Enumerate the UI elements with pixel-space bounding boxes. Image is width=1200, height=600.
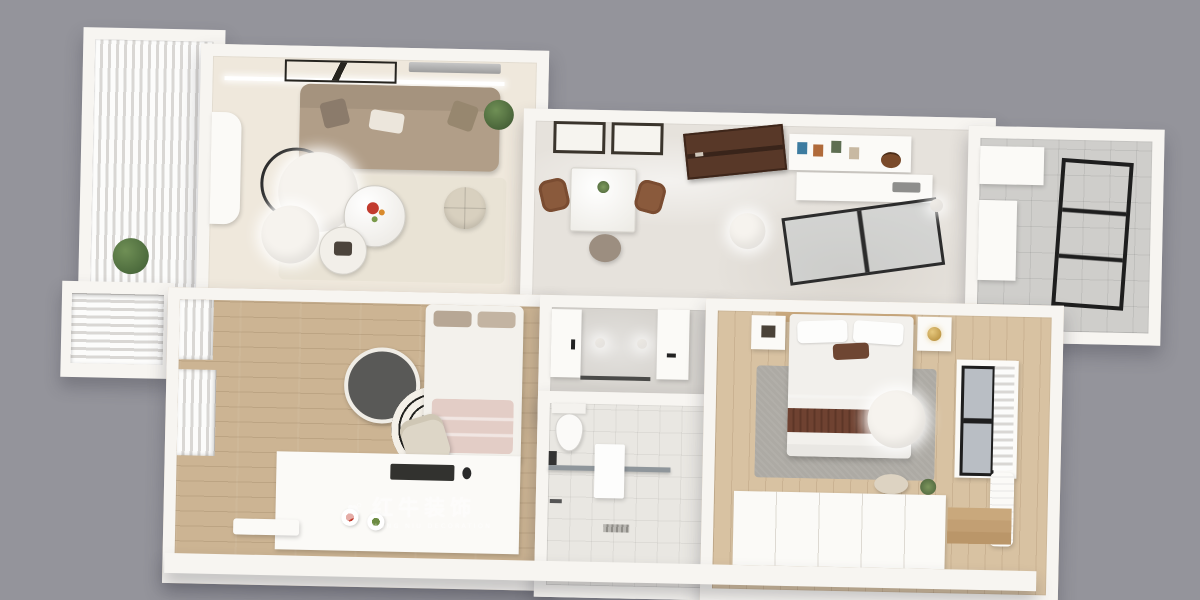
kitchen-glass-partition: [781, 197, 945, 286]
nightstand: [917, 317, 952, 352]
book-decor: [761, 325, 775, 337]
picture-frame: [553, 121, 606, 154]
flower-vase: [597, 181, 609, 193]
watermark-brand-en: HONG NIU DECORATION: [372, 522, 492, 530]
kitchen-pendant-light: [930, 199, 943, 212]
floorplan-render: 红牛装饰 HONG NIU DECORATION: [0, 0, 1200, 600]
wall-art: [285, 59, 397, 83]
plant-icon: [920, 479, 936, 495]
toilet-tank: [552, 403, 586, 414]
dining-table: [569, 167, 636, 232]
door-handle: [571, 339, 575, 349]
ac-vent: [409, 62, 501, 74]
window: [954, 359, 1018, 478]
window-shade: [179, 299, 214, 360]
bull-logo-icon: [338, 501, 364, 527]
floor-drain: [603, 524, 629, 533]
wardrobe: [732, 491, 946, 569]
pillow: [433, 311, 471, 328]
threshold: [580, 376, 650, 381]
dining-chair: [537, 176, 571, 213]
keyboard: [390, 464, 454, 481]
sofa-pillow: [368, 109, 405, 134]
toilet: [555, 413, 584, 452]
pillow: [797, 320, 848, 344]
picture-frame: [611, 122, 664, 155]
paper-holder: [549, 451, 557, 465]
downlight: [595, 338, 605, 348]
downlight: [637, 339, 647, 349]
entry-console-shelf: [789, 134, 912, 173]
pillow: [477, 311, 515, 328]
watermark: 红牛装饰 HONG NIU DECORATION: [338, 498, 492, 530]
console-decor: [797, 142, 807, 154]
bedroom-small: [162, 287, 560, 591]
stool: [874, 474, 908, 495]
plant-icon: [484, 100, 515, 131]
apartment-plan: [0, 0, 1200, 600]
hand-bag: [881, 152, 901, 168]
side-counter: [978, 200, 1018, 281]
fruit-bowl: [367, 202, 379, 214]
hall-ceiling-lamp: [729, 213, 766, 250]
faucet-icon: [667, 353, 676, 357]
master-bedroom: [700, 298, 1064, 600]
wood-steps: [947, 507, 1012, 544]
dark-glass-door: [1051, 158, 1134, 311]
dining-stool: [589, 234, 622, 263]
mouse: [462, 467, 471, 479]
window-shade: [177, 369, 217, 456]
tray: [334, 241, 352, 255]
bay-roller-shade: [71, 293, 164, 365]
accent-pillow: [833, 342, 870, 360]
dining-chair: [632, 178, 667, 216]
curtain: [993, 366, 1015, 470]
vanity: [656, 309, 689, 380]
gold-table-lamp: [927, 327, 941, 341]
entry-door: [683, 124, 787, 180]
tv-console: [210, 112, 242, 225]
nightstand: [751, 315, 786, 350]
door-handle: [695, 152, 703, 157]
kitchen-counter: [796, 172, 933, 203]
bath-door-panel: [550, 309, 581, 378]
bay-window: [60, 281, 174, 379]
shower-head-icon: [550, 499, 562, 503]
utility-cabinet: [980, 146, 1045, 185]
plant-icon: [112, 238, 149, 275]
window-glass: [959, 366, 995, 477]
living-room: [196, 44, 550, 327]
towel: [594, 444, 625, 499]
watermark-brand-cn: 红牛装饰: [372, 498, 492, 519]
tray: [233, 518, 299, 535]
kitchen-sink: [892, 182, 920, 193]
